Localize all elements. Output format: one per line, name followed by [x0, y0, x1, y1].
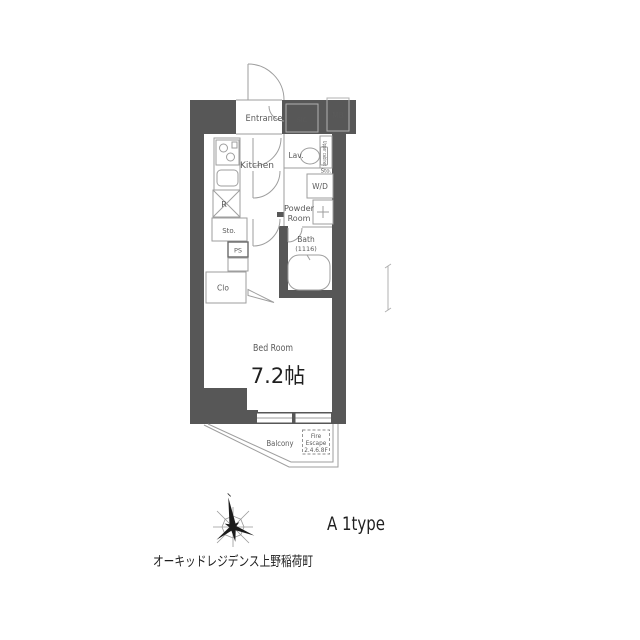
compass-icon — [213, 493, 255, 547]
small-box — [228, 258, 248, 271]
ps-label: PS — [234, 247, 242, 255]
entrance-label: Entrance — [246, 114, 283, 124]
kitchen-label: Kitchen — [240, 161, 274, 171]
fire-escape-label-2: Escape — [306, 441, 327, 447]
floorplan-page: Entrance SIC MB Kitchen Lav. Upper cabin… — [0, 0, 640, 640]
powder-label-2: Room — [288, 214, 311, 223]
lav-label: Lav. — [288, 151, 303, 160]
kitchen-counter — [214, 138, 240, 190]
plan-type-label: A 1type — [327, 513, 385, 535]
sic-label: SIC — [297, 116, 308, 124]
balcony-label: Balcony — [267, 439, 294, 448]
refrigerator-label: R — [221, 200, 227, 209]
building-name-label: オーキッドレジデンス上野稲荷町 — [153, 553, 313, 570]
closet-label: Clo — [217, 284, 229, 293]
bath-label-1: Bath — [297, 235, 315, 244]
wd-label: W/D — [312, 182, 328, 191]
fire-escape-label-3: 2.4.6.8F — [304, 448, 328, 454]
powder-label-1: Powder — [284, 204, 315, 213]
hall-door-arcs — [253, 138, 281, 246]
upper-cabinet-label: Upper cabinet — [321, 141, 327, 166]
dimension-line — [385, 264, 391, 312]
sto-above-wd-label: Sto. — [321, 169, 332, 175]
floorplan-drawing: Entrance SIC MB Kitchen Lav. Upper cabin… — [0, 0, 640, 640]
storage-label: Sto. — [222, 227, 236, 235]
bath-label-2: (1116) — [295, 245, 317, 253]
bedroom-window — [257, 414, 331, 423]
bedroom-door-leaf — [248, 290, 274, 303]
fire-escape-label-1: Fire — [311, 434, 322, 440]
vanity-icon — [313, 200, 333, 224]
bathtub-icon — [288, 255, 330, 290]
bedroom-size-label: 7.2帖 — [251, 364, 305, 388]
bedroom-label: Bed Room — [253, 343, 293, 354]
mb-label: MB — [332, 111, 344, 120]
